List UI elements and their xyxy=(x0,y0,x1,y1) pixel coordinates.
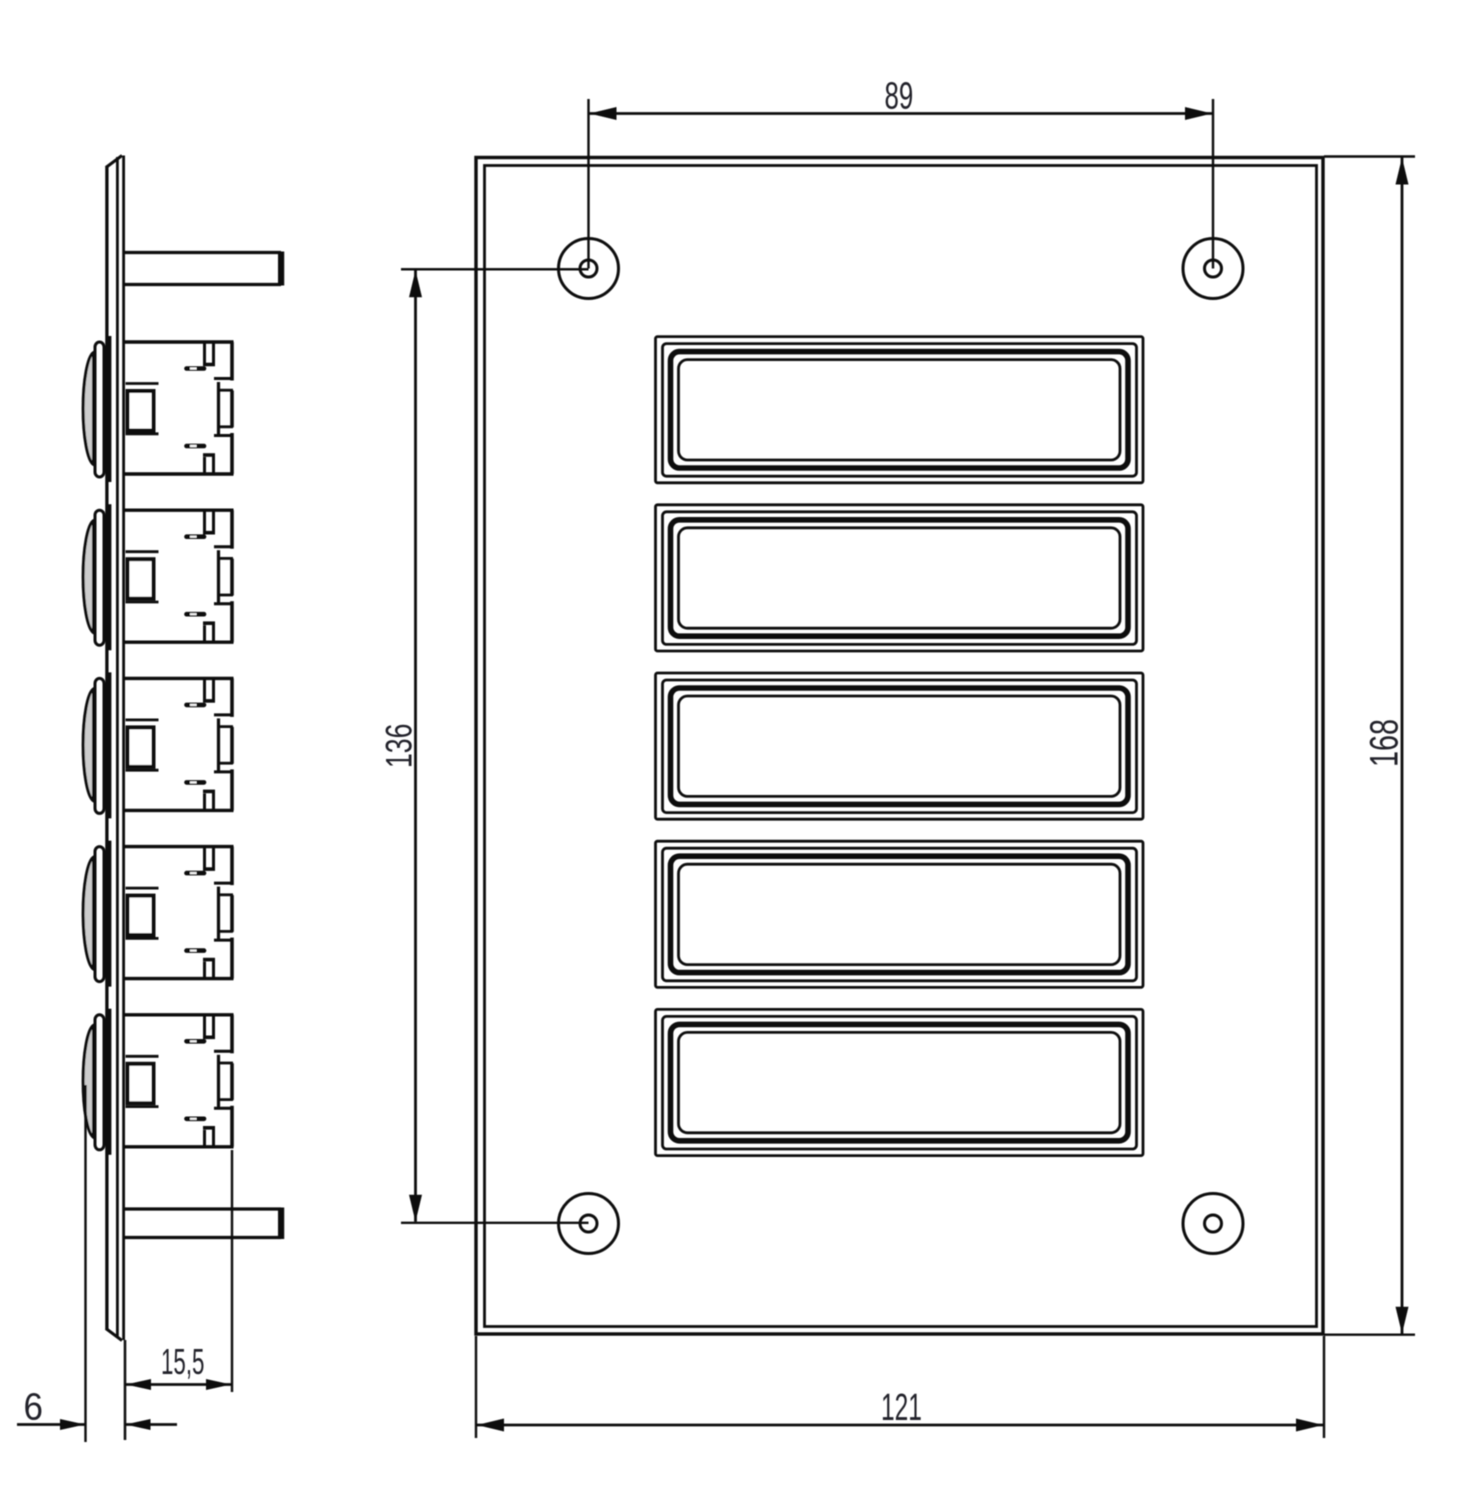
svg-text:89: 89 xyxy=(885,75,914,117)
svg-text:168: 168 xyxy=(1362,719,1407,767)
svg-text:15,5: 15,5 xyxy=(161,1343,204,1383)
svg-text:121: 121 xyxy=(881,1386,922,1429)
svg-text:136: 136 xyxy=(378,724,419,768)
svg-text:6: 6 xyxy=(24,1385,43,1428)
